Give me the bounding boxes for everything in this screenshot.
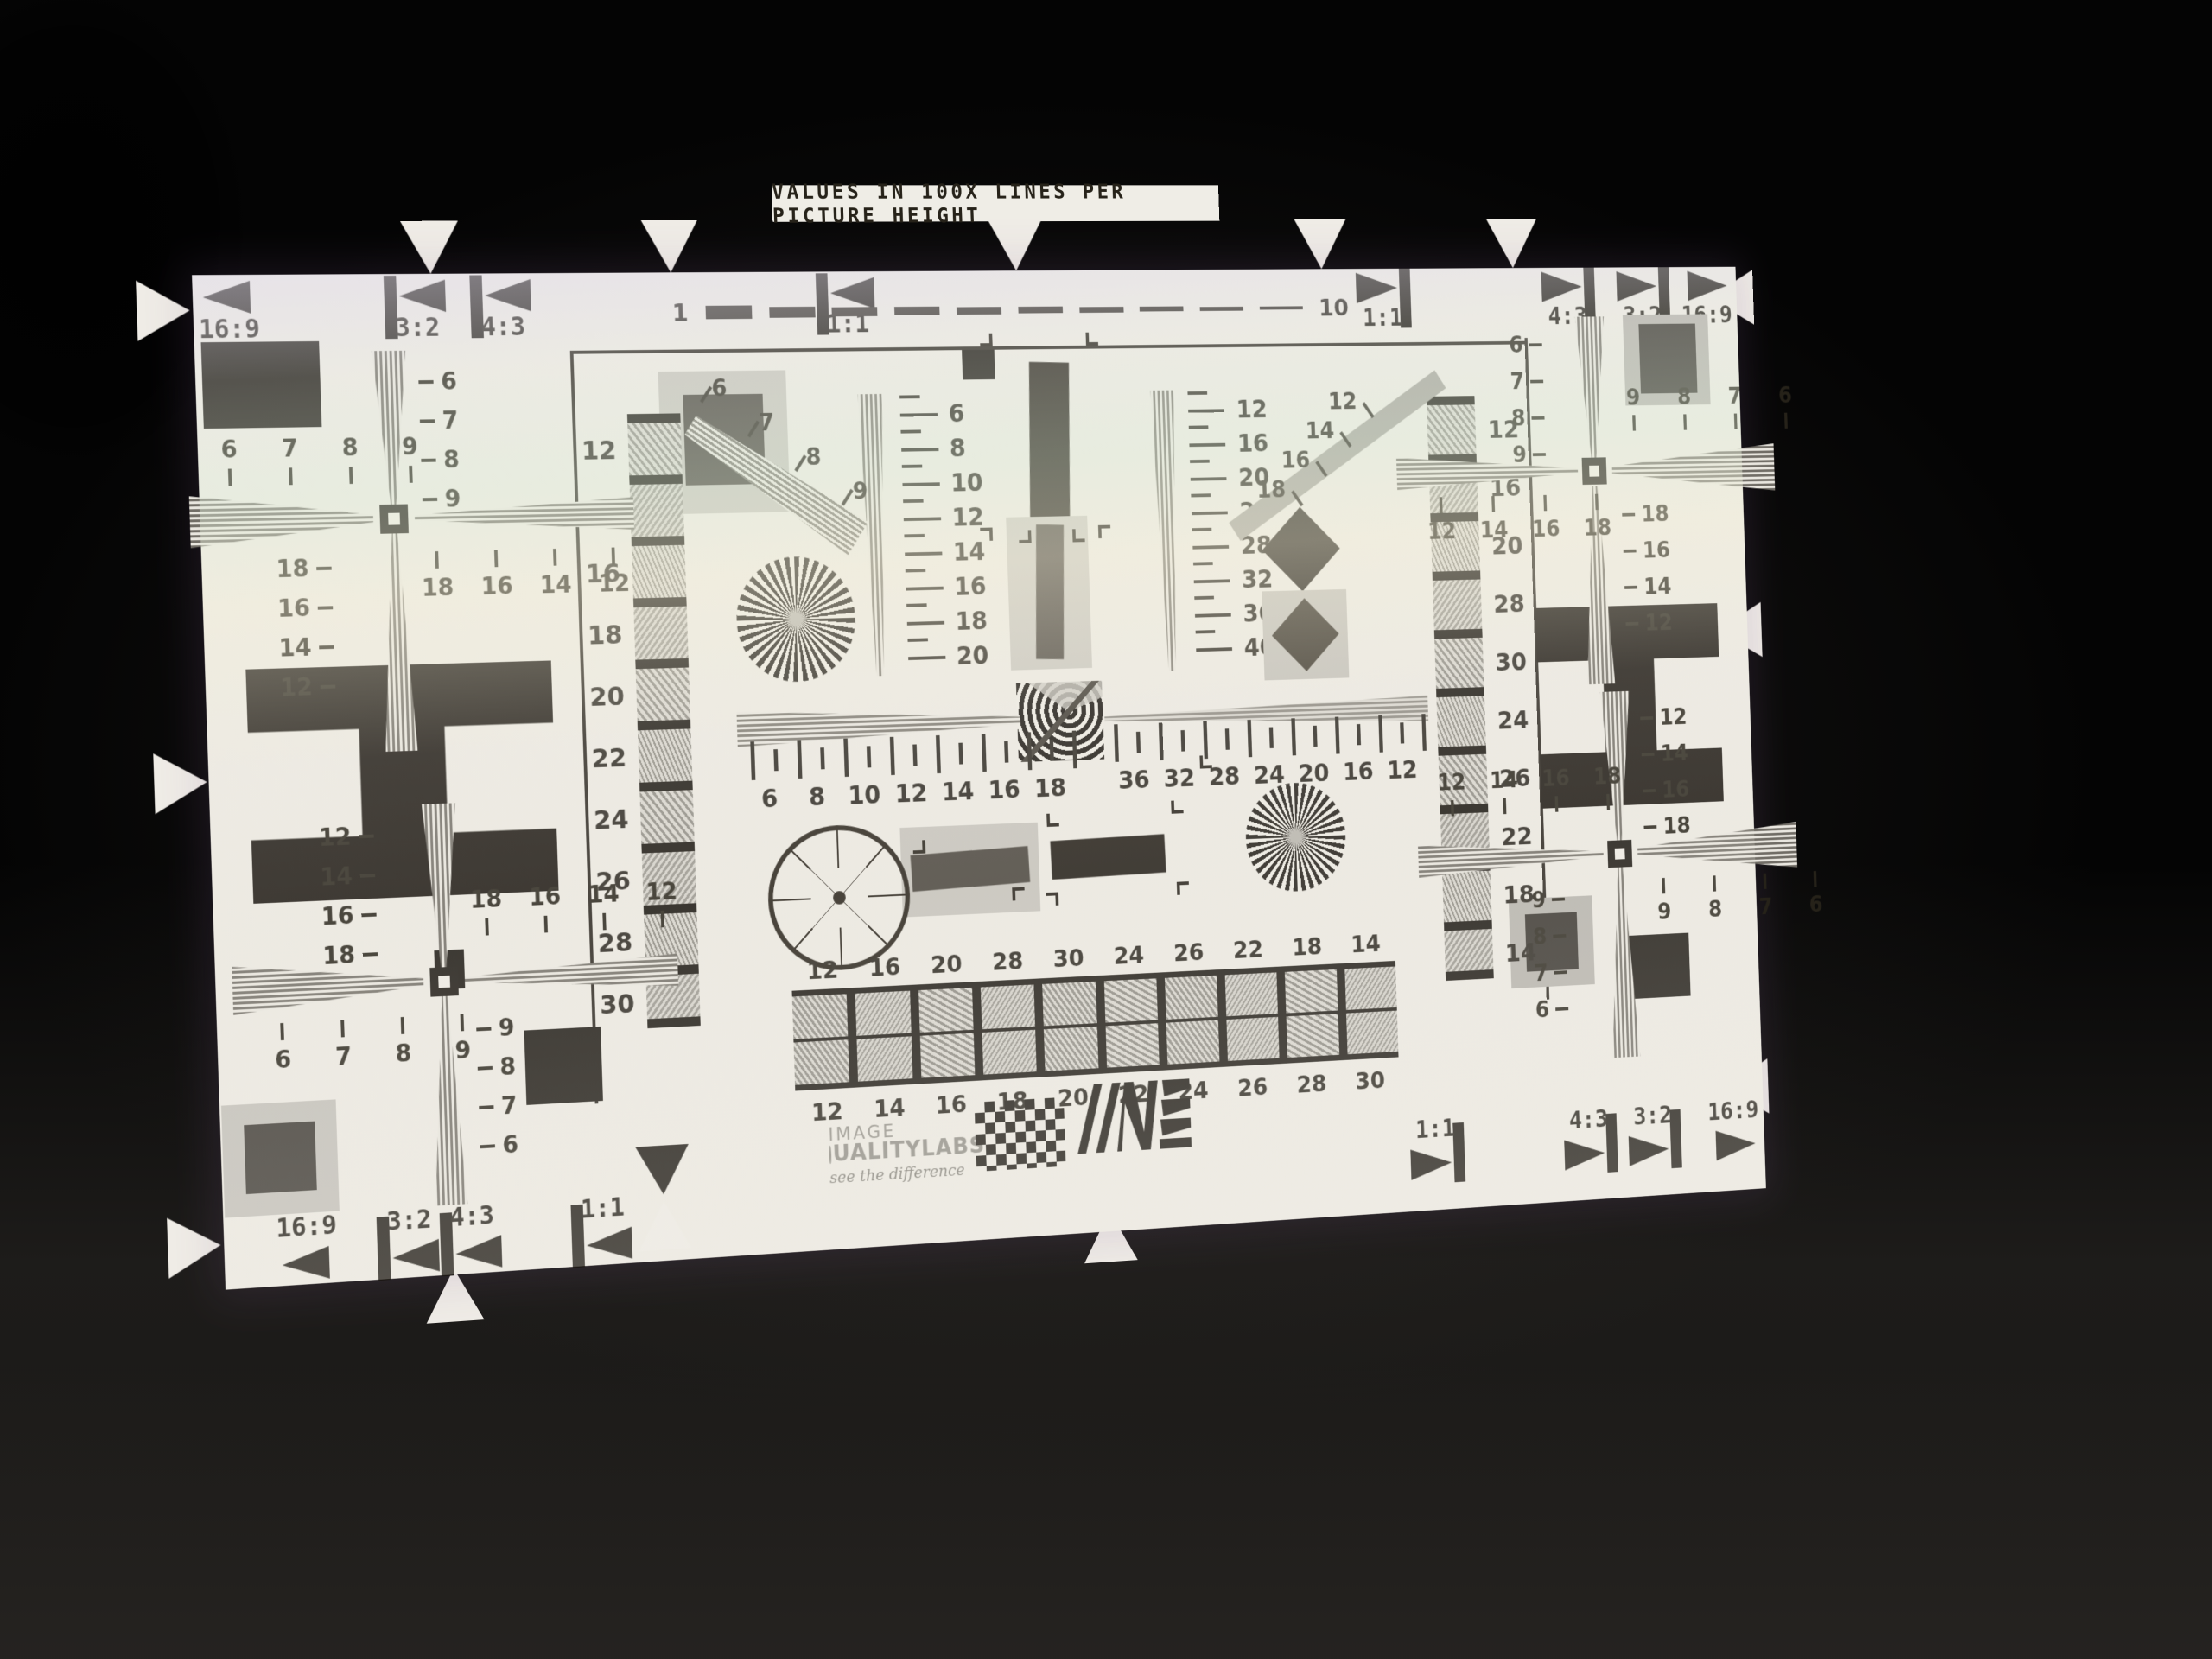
aspect-label: 1:1 xyxy=(1363,304,1403,333)
checker-cell xyxy=(1287,1014,1339,1058)
registration-bracket xyxy=(980,528,993,542)
registration-bracket xyxy=(1171,800,1183,814)
checker-cell xyxy=(1226,1017,1280,1061)
marker-triangle-icon xyxy=(1356,272,1398,303)
segmented-circle xyxy=(766,823,912,974)
checker-cell xyxy=(1166,1020,1220,1065)
scale-label: 8 xyxy=(949,434,966,463)
frequency-checkerboard: 12162028302426221814 1214161820222426283… xyxy=(791,961,1398,1091)
scale-label: 18 xyxy=(955,607,988,636)
chart-title-plate: VALUES IN 100X LINES PER PICTURE HEIGHT xyxy=(772,185,1219,221)
ruler-numbers-right: 36322824201612 xyxy=(1110,755,1424,795)
logo-stripes-mark xyxy=(1071,1075,1194,1157)
registration-bracket xyxy=(1019,530,1032,543)
scale-step: 10 xyxy=(902,462,979,499)
black-tab xyxy=(962,350,995,380)
wedge-cross-bottom-right: 12141618 9876 12141618 9876 xyxy=(1424,632,1825,1140)
checker-cell xyxy=(1105,1023,1159,1067)
registration-bracket xyxy=(1177,881,1189,895)
dash-scale-start: 1 xyxy=(671,298,689,327)
registration-bracket xyxy=(980,334,993,346)
registration-bracket xyxy=(1046,892,1059,906)
corner-bowtie-icon xyxy=(167,1215,221,1279)
marker-triangle-icon xyxy=(1715,1128,1756,1160)
strip-block: 14 xyxy=(629,474,684,537)
checker-cell xyxy=(1165,976,1218,1020)
registration-bracket xyxy=(1046,813,1059,827)
scale-label: 10 xyxy=(950,468,983,498)
siemens-star xyxy=(734,556,857,683)
strip-block: 18 xyxy=(633,597,689,660)
diagonal-wedge-fan: 6 7 8 9 xyxy=(690,387,900,557)
logo-checker-mark xyxy=(975,1097,1066,1172)
edge-arrow-icon xyxy=(988,219,1043,270)
strip-block: 12 xyxy=(627,413,683,475)
scale-step: 32 xyxy=(1193,559,1277,595)
floor-reflection xyxy=(0,1365,2212,1659)
checker-cell xyxy=(981,984,1035,1029)
test-chart-projection: VALUES IN 100X LINES PER PICTURE HEIGHT xyxy=(192,267,1766,1290)
photo-of-projected-test-chart: VALUES IN 100X LINES PER PICTURE HEIGHT xyxy=(0,0,2212,1659)
checker-cell xyxy=(1285,969,1338,1014)
registration-bracket xyxy=(1072,529,1085,542)
edge-arrow-icon xyxy=(641,220,699,272)
checker-cell xyxy=(919,1033,975,1078)
scale-step: 16 xyxy=(906,566,982,602)
checker-cell xyxy=(918,988,974,1033)
wedge-pattern xyxy=(1144,390,1190,671)
black-vertical-bar xyxy=(1029,362,1070,520)
checker-cell xyxy=(1346,1011,1399,1055)
edge-arrow-icon xyxy=(1294,219,1348,269)
scale-step: 12 xyxy=(903,497,980,533)
scale-step: 18 xyxy=(906,601,983,638)
checker-cell xyxy=(1225,972,1279,1016)
checker-cell xyxy=(855,991,911,1036)
scale-step: 8 xyxy=(900,428,977,464)
edge-arrow-icon xyxy=(400,221,460,274)
logo-q-icon xyxy=(829,1146,831,1164)
scale-label: 6 xyxy=(948,399,965,429)
wedge-cross-top-left: 6789 18161412 6789 18161412 xyxy=(158,280,624,819)
scale-label: 32 xyxy=(1242,565,1274,594)
checker-cell xyxy=(1103,978,1157,1022)
registration-bracket xyxy=(1085,333,1098,346)
scale-label: 20 xyxy=(956,641,988,671)
checker-cell xyxy=(1344,966,1397,1010)
scale-step: 20 xyxy=(907,635,984,672)
scale-step: 14 xyxy=(904,531,981,568)
strip-block: 20 xyxy=(635,658,690,721)
gray-rect-horizontal-bar xyxy=(899,823,1040,918)
registration-bracket xyxy=(1012,887,1025,901)
registration-bracket xyxy=(1098,525,1111,538)
strip-block: 16 xyxy=(632,536,687,598)
scale-label: 16 xyxy=(954,572,987,601)
registration-bracket xyxy=(912,840,925,854)
siemens-star xyxy=(1244,781,1347,893)
checker-cell xyxy=(1042,982,1096,1027)
resolution-dash-scale: 1 10 xyxy=(671,289,1349,331)
black-horizontal-bar xyxy=(1050,834,1166,880)
checker-cell xyxy=(792,994,849,1039)
checker-cell xyxy=(1044,1027,1098,1071)
ruler-numbers-left: 681012141618 xyxy=(746,773,1074,815)
scale-step: 6 xyxy=(899,393,976,429)
scale-label: 14 xyxy=(952,537,985,567)
marker-triangle-icon xyxy=(1410,1147,1452,1180)
checker-cell xyxy=(982,1030,1037,1075)
dash-scale-end: 10 xyxy=(1319,294,1350,321)
wedge-cross-bottom-left: 12141618 9876 18161412 6789 xyxy=(208,743,672,1294)
gray-framed-diamond xyxy=(1262,589,1349,681)
checker-cell xyxy=(857,1036,912,1081)
image-quality-labs-logo: IMAGE UALITYLABS see the difference xyxy=(828,1118,987,1218)
diagonal-gray-bar: 12 14 16 18 xyxy=(1233,396,1488,545)
checker-cell xyxy=(793,1039,849,1085)
chart-white-field: 16:9 3:2 4:3 1:1 xyxy=(192,267,1766,1290)
